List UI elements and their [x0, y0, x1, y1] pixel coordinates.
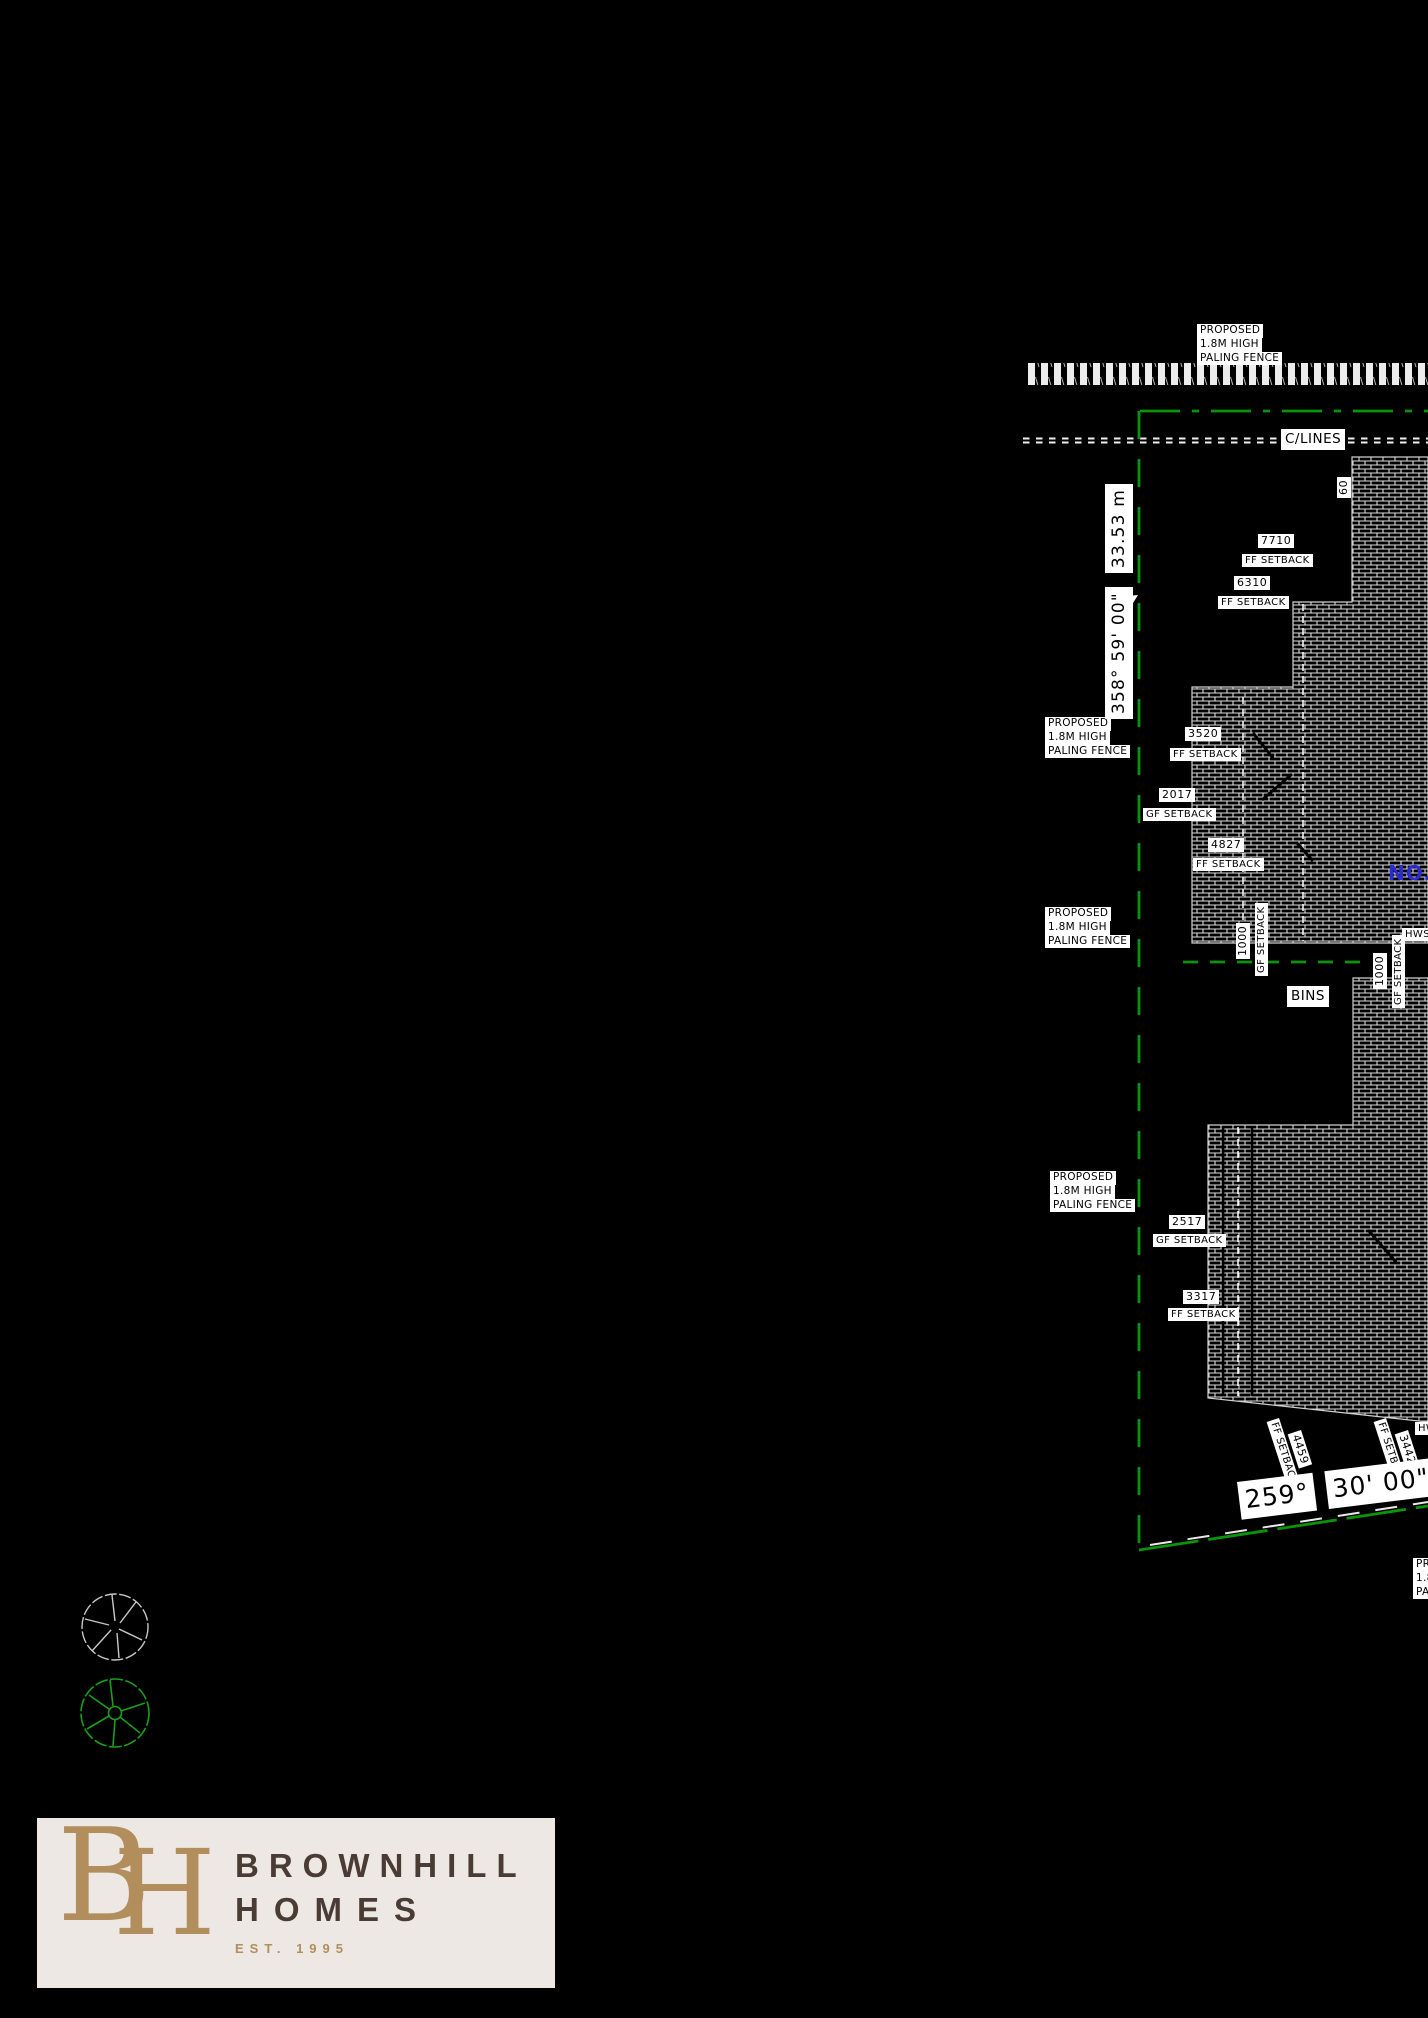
bins-label: BINS: [1287, 986, 1329, 1007]
tree-symbol-existing: [82, 1594, 148, 1660]
paling-fence-hatch-top: [1027, 363, 1428, 385]
building-lower-footprint: [1208, 978, 1428, 1422]
fence-label-west-3: PROPOSED 1.8M HIGH PALING FENCE: [1050, 1171, 1135, 1212]
setback-2017-value: 2017: [1159, 788, 1195, 802]
setback-7710-type: FF SETBACK: [1242, 554, 1313, 567]
setback-3520-value: 3520: [1185, 727, 1221, 741]
brownhill-homes-logo: B H BROWNHILL HOMES EST. 1995: [37, 1818, 555, 1988]
hws-label-partial: HWS: [1415, 1422, 1428, 1435]
brand-name-line1: BROWNHILL: [235, 1844, 527, 1888]
clines-dashed-line: [1023, 439, 1428, 443]
setback-1000a-value: 1000: [1231, 923, 1250, 959]
tag-60-label: 60: [1332, 477, 1351, 498]
setback-2017-type: GF SETBACK: [1143, 808, 1216, 821]
setback-3520-type: FF SETBACK: [1170, 748, 1241, 761]
fence-label-west-2: PROPOSED 1.8M HIGH PALING FENCE: [1045, 907, 1130, 948]
monogram-letter-h: H: [113, 1824, 216, 1962]
bh-monogram: B H: [51, 1818, 231, 1988]
setback-6310-value: 6310: [1234, 576, 1270, 590]
setback-6310-type: FF SETBACK: [1218, 596, 1289, 609]
setback-2517-type: GF SETBACK: [1153, 1234, 1226, 1247]
blue-handwritten-note: NO.: [1388, 861, 1428, 885]
setback-3317-type: FF SETBACK: [1168, 1308, 1239, 1321]
setback-1000b-value: 1000: [1368, 953, 1387, 989]
tree-symbol-proposed: [81, 1679, 149, 1747]
fence-label-south-cut: PROPOSED 1.8M HIGH PALING FENCE: [1413, 1558, 1428, 1599]
setback-4827-type: FF SETBACK: [1193, 858, 1264, 871]
clines-label: C/LINES: [1281, 429, 1345, 450]
logo-text: BROWNHILL HOMES EST. 1995: [235, 1844, 527, 1956]
setback-1000a-type: GF SETBACK: [1249, 903, 1268, 976]
north-bearing-label: 358° 59' 00"33.53 m: [1105, 484, 1133, 719]
setback-2517-value: 2517: [1169, 1215, 1205, 1229]
setback-4827-value: 4827: [1208, 838, 1244, 852]
setback-1000b-type: GF SETBACK: [1386, 935, 1405, 1008]
setback-7710-value: 7710: [1258, 534, 1294, 548]
hws-label: HWS: [1402, 928, 1428, 941]
fence-label-west-1: PROPOSED 1.8M HIGH PALING FENCE: [1045, 717, 1130, 758]
fence-label-north: PROPOSED 1.8M HIGH PALING FENCE: [1197, 324, 1282, 365]
established-year: EST. 1995: [235, 1941, 527, 1956]
site-plan-drawing: [0, 0, 1428, 2018]
brand-name-line2: HOMES: [235, 1888, 527, 1932]
setback-3317-value: 3317: [1183, 1290, 1219, 1304]
site-plan-page: PROPOSED 1.8M HIGH PALING FENCE PROPOSED…: [0, 0, 1428, 2018]
